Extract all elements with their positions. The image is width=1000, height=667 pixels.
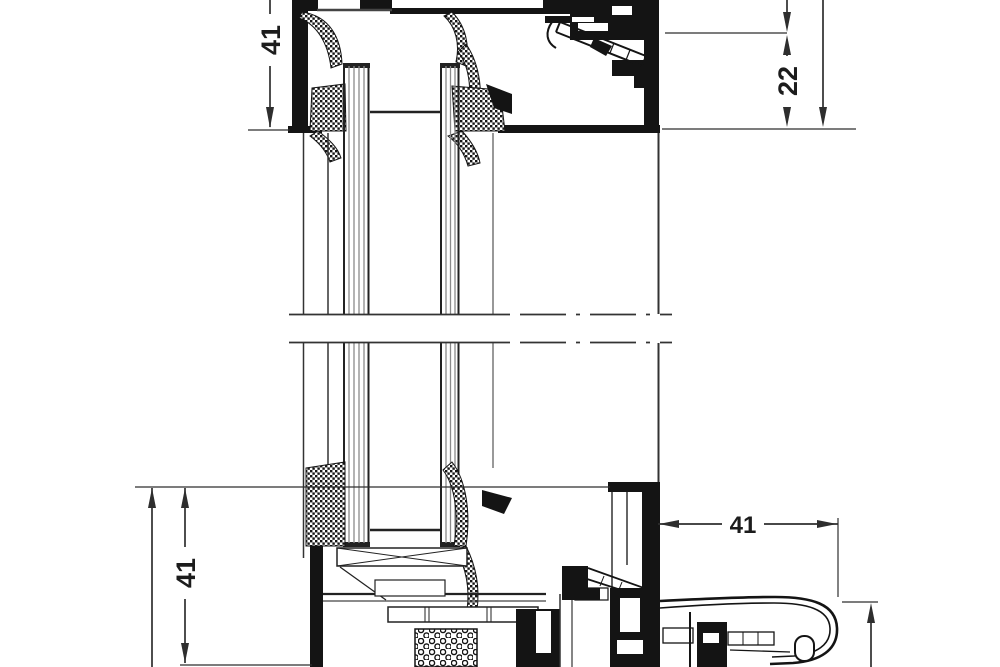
exterior-sill <box>660 597 837 667</box>
glazing-bridge <box>337 548 467 566</box>
head-rebate-step-b <box>634 76 658 88</box>
dimension-label-head-glass-inset: 22 <box>773 66 803 96</box>
head-block-slot-b <box>612 6 632 15</box>
arrowhead-up <box>181 488 189 508</box>
sill-support-block <box>697 622 727 667</box>
arrowhead-left <box>659 520 679 528</box>
sill-frame-outer-face <box>642 487 660 601</box>
technical-drawing-canvas: 41 22 41 <box>0 0 1000 667</box>
head-bottom-edge-right <box>498 125 660 133</box>
glazing-block-bottom <box>482 490 512 514</box>
sill-chamber-slot <box>536 611 551 653</box>
break-lines <box>289 315 672 343</box>
gasket-left-tail <box>310 131 341 162</box>
head-inner-bar-gap <box>572 17 594 22</box>
sill-support-slot <box>703 633 719 643</box>
gasket-bottom-right-band <box>443 462 468 546</box>
gasket-right-tail <box>448 131 480 166</box>
projection-lines <box>304 133 659 558</box>
arrowhead-up <box>783 35 791 55</box>
arrowhead-down <box>819 107 827 127</box>
gasket-left-wedge <box>310 84 346 131</box>
thermal-break-zone <box>415 629 477 667</box>
sash-bottom-rail <box>323 567 546 622</box>
sill-pocket <box>663 628 693 643</box>
section-drawing: 41 22 41 <box>0 0 1000 667</box>
sill-inner-slot-b <box>617 640 643 654</box>
sill-clip-row <box>728 632 774 645</box>
arrowhead-down <box>181 643 189 663</box>
dimension-label-head-frame-depth: 41 <box>256 25 286 55</box>
head-glazing-bead <box>390 8 545 14</box>
dimension-label-sill-projection: 41 <box>730 512 757 539</box>
glass-bottom-cap-outer <box>343 542 370 547</box>
sill-nose-slot <box>795 636 814 661</box>
head-top-member-c <box>543 0 573 14</box>
head-gaskets <box>299 12 512 166</box>
dimension-label-sill-frame-depth: 41 <box>171 558 201 588</box>
head-rebate-ledge <box>616 28 658 39</box>
arrowhead-down <box>783 12 791 32</box>
arrowhead-down <box>783 107 791 127</box>
arrowhead-down <box>266 107 274 128</box>
glazing-unit <box>304 63 659 558</box>
arrowhead-right <box>817 520 837 528</box>
sill-frame-section <box>306 462 837 667</box>
glass-top-cap-outer <box>343 63 370 68</box>
glass-pane-outer <box>344 66 369 543</box>
sash-left-face <box>310 545 323 667</box>
head-top-member-b <box>360 0 392 10</box>
dimension-head-glass-inset: 22 <box>662 0 856 129</box>
dimension-head-frame-depth: 41 <box>248 0 290 130</box>
gasket-bottom-left-wedge <box>306 462 345 546</box>
arrowhead-up <box>867 603 875 623</box>
arrowhead-up <box>148 488 156 508</box>
sill-inner-slot-a <box>620 598 640 632</box>
head-top-member-a <box>303 0 318 11</box>
